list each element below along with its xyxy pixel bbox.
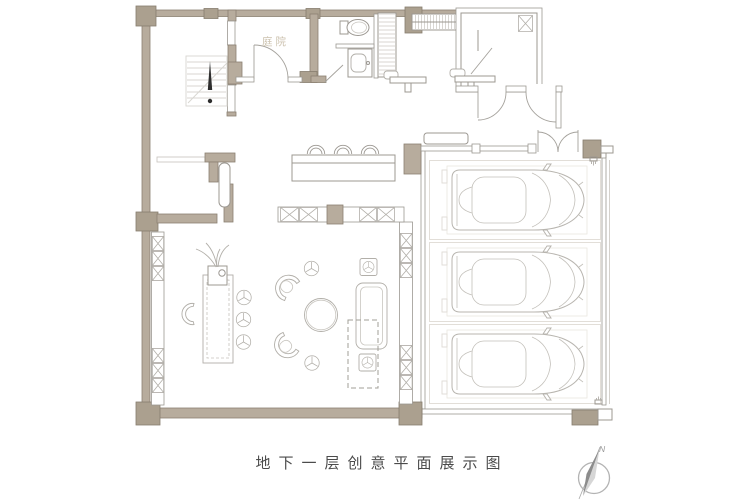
entry-corridor	[421, 86, 578, 153]
bar-stool	[361, 145, 378, 154]
door-swing-arc	[538, 132, 558, 152]
wall-opening	[228, 21, 236, 45]
wall-cap	[227, 112, 236, 116]
bar-area	[292, 145, 395, 181]
corner-column	[136, 402, 160, 425]
courtyard-right-wall	[310, 14, 318, 78]
wall-stub	[311, 76, 326, 83]
garage-right-wall	[602, 158, 606, 405]
bathroom-door-leaf	[325, 65, 343, 82]
stool	[237, 290, 251, 304]
courtyard-room: 庭院	[236, 35, 302, 82]
door-jamb	[528, 144, 536, 153]
staircase	[186, 56, 227, 106]
study-room	[450, 8, 556, 94]
door-swing-arc	[558, 132, 578, 152]
tea-table-group	[182, 243, 251, 363]
tripod-stool	[304, 261, 318, 275]
bar-counter	[292, 155, 395, 181]
wall-segment	[556, 92, 561, 128]
tripod-stool	[362, 357, 373, 368]
bathroom	[325, 14, 378, 82]
stool	[236, 312, 250, 326]
column	[327, 205, 343, 224]
wall-segment	[421, 146, 473, 151]
corner-column	[136, 6, 156, 26]
door-jamb	[472, 144, 480, 153]
corner-column	[399, 402, 422, 425]
floor-plan-page: 庭院	[0, 0, 750, 500]
bar-stool	[334, 145, 351, 154]
wall-segment	[506, 86, 526, 92]
garage-top-fixture	[601, 146, 613, 153]
door-opening	[526, 84, 556, 94]
storage-room	[157, 153, 235, 223]
column	[204, 9, 218, 19]
door-swing-arc	[478, 92, 506, 120]
car-icon	[452, 328, 584, 400]
door-swing-arc	[526, 92, 556, 122]
bathroom-partition	[336, 44, 374, 48]
chair	[182, 303, 194, 324]
window	[157, 157, 205, 162]
round-table	[305, 299, 338, 332]
garage-bottom-fixture	[598, 409, 612, 420]
bar-stool	[307, 145, 324, 154]
floor-plan-drawing: 庭院	[0, 0, 750, 500]
wall-segment	[157, 214, 217, 223]
wall-opening	[228, 85, 236, 112]
tripod-stool	[305, 356, 319, 370]
left-wall	[142, 10, 150, 410]
wall-segment	[556, 86, 562, 92]
wall-segment	[288, 77, 302, 82]
wall-segment	[480, 146, 528, 151]
courtyard-label: 庭院	[262, 35, 289, 48]
garage-left-wall	[421, 150, 425, 409]
door-opening	[478, 84, 506, 94]
wall-segment	[456, 86, 478, 92]
plant-icon	[196, 243, 229, 267]
tea-table	[203, 275, 233, 363]
car-icon	[452, 164, 584, 236]
armchair	[269, 332, 299, 363]
bottom-wall	[140, 408, 422, 418]
garage-column-top	[583, 140, 601, 158]
living-area	[182, 243, 387, 388]
armchair	[270, 270, 300, 301]
wall-segment	[209, 162, 218, 182]
garage-column-bottom	[572, 410, 598, 425]
wall-segment	[236, 77, 254, 82]
car-icon	[452, 246, 584, 318]
sink-icon	[348, 49, 372, 77]
toilet-icon	[340, 20, 369, 36]
french-doors	[538, 130, 578, 152]
door-swing-arc	[254, 45, 288, 79]
stair-start-dot	[208, 99, 212, 103]
plan-title: 地下一层创意平面展示图	[142, 452, 622, 473]
column	[136, 212, 158, 231]
divider-wall	[228, 10, 236, 21]
tripod-stool	[363, 261, 374, 272]
stool	[236, 335, 250, 349]
column	[404, 144, 421, 174]
column-symbol	[518, 16, 532, 32]
sofa-group	[348, 259, 387, 389]
bathroom-right-wall	[374, 14, 378, 78]
bench	[424, 133, 468, 144]
wall-segment	[205, 153, 235, 162]
towel-rack	[378, 13, 396, 77]
desk	[384, 71, 426, 92]
garage	[421, 140, 613, 425]
stair-direction-arrow	[208, 61, 212, 90]
open-door-leaf	[219, 163, 230, 207]
lounge-group	[269, 261, 337, 370]
